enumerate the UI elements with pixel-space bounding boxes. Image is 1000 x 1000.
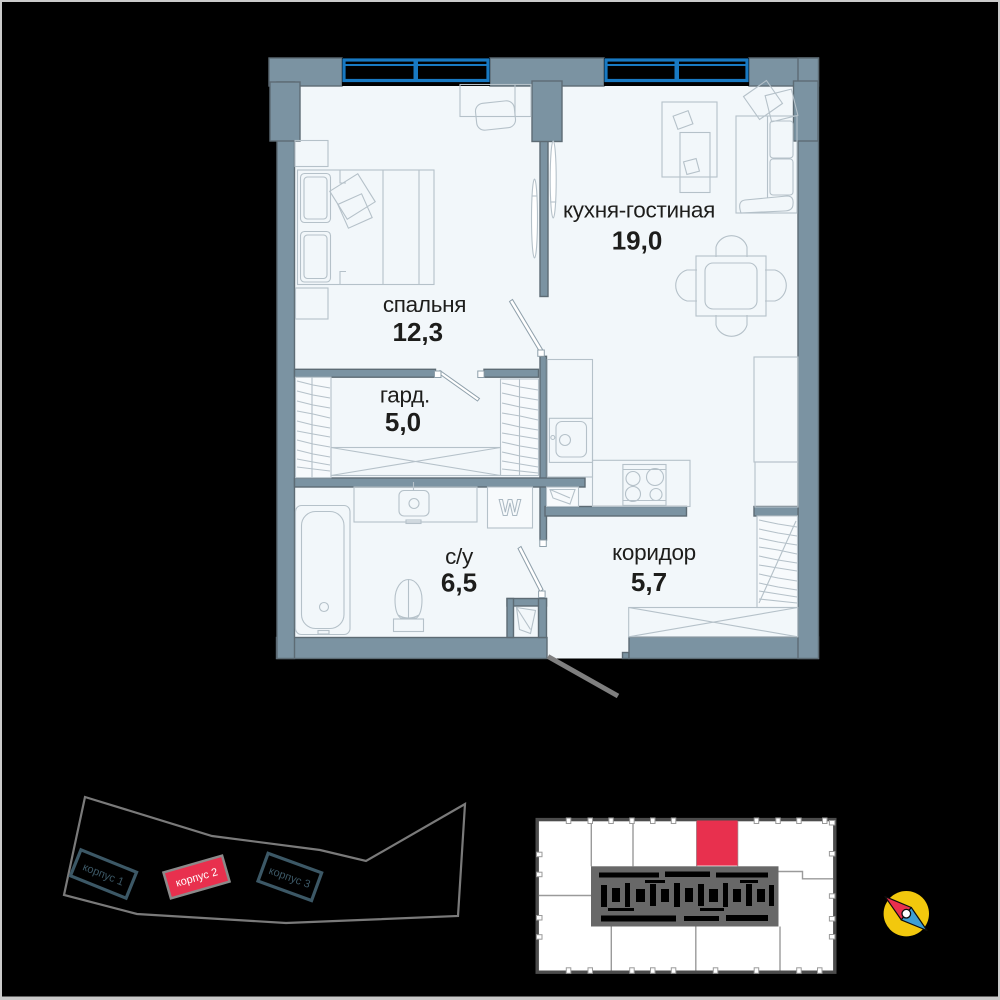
svg-text:5,0: 5,0 (385, 407, 421, 437)
svg-text:6,5: 6,5 (441, 568, 477, 598)
svg-text:с/у: с/у (445, 544, 474, 569)
svg-text:5,7: 5,7 (631, 567, 667, 597)
svg-text:спальня: спальня (383, 292, 466, 317)
svg-text:гард.: гард. (380, 383, 430, 408)
svg-text:W: W (499, 495, 521, 521)
svg-text:19,0: 19,0 (612, 226, 663, 256)
svg-text:коридор: коридор (612, 540, 696, 565)
svg-text:кухня-гостиная: кухня-гостиная (563, 198, 715, 223)
svg-text:12,3: 12,3 (392, 317, 443, 347)
